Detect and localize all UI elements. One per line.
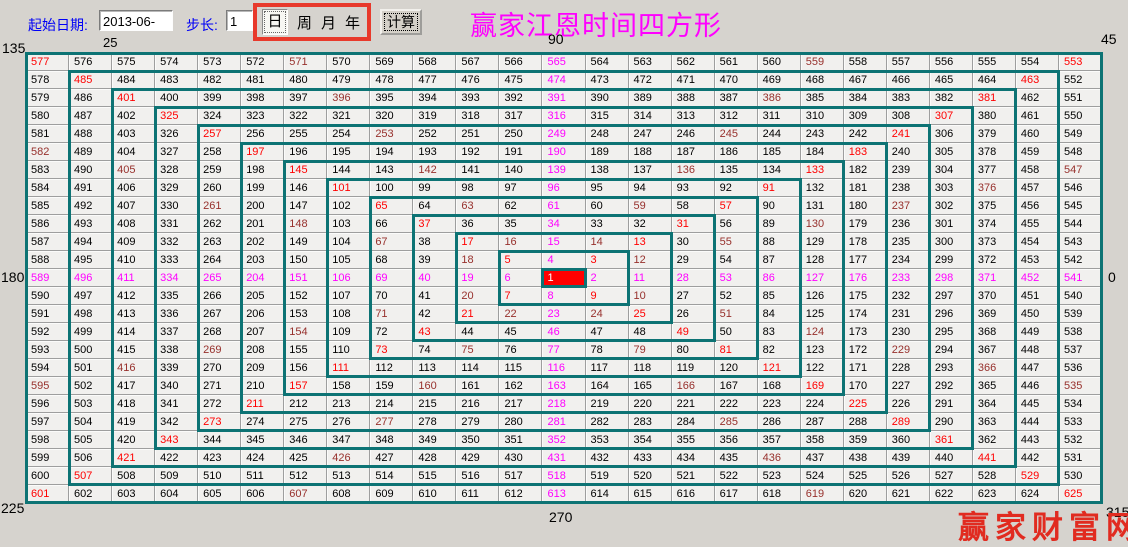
grid-cell[interactable]: 546: [1059, 179, 1102, 197]
grid-cell[interactable]: 106: [327, 269, 370, 287]
grid-cell[interactable]: 223: [758, 395, 801, 413]
grid-cell[interactable]: 111: [327, 359, 370, 377]
grid-cell[interactable]: 272: [198, 395, 241, 413]
grid-cell[interactable]: 280: [499, 413, 542, 431]
grid-cell[interactable]: 57: [715, 197, 758, 215]
grid-cell[interactable]: 416: [112, 359, 155, 377]
grid-cell[interactable]: 251: [456, 125, 499, 143]
grid-cell[interactable]: 540: [1059, 287, 1102, 305]
grid-cell[interactable]: 349: [413, 431, 456, 449]
grid-cell[interactable]: 184: [801, 143, 844, 161]
grid-cell[interactable]: 471: [672, 71, 715, 89]
grid-cell[interactable]: 395: [370, 89, 413, 107]
grid-cell[interactable]: 218: [542, 395, 585, 413]
grid-cell[interactable]: 442: [1016, 449, 1059, 467]
grid-cell[interactable]: 425: [284, 449, 327, 467]
grid-cell[interactable]: 521: [672, 467, 715, 485]
grid-cell[interactable]: 163: [542, 377, 585, 395]
grid-cell[interactable]: 401: [112, 89, 155, 107]
grid-cell[interactable]: 342: [155, 413, 198, 431]
grid-cell[interactable]: 214: [370, 395, 413, 413]
grid-cell[interactable]: 559: [801, 53, 844, 71]
grid-cell[interactable]: 406: [112, 179, 155, 197]
grid-cell[interactable]: 4: [542, 251, 585, 269]
grid-cell[interactable]: 20: [456, 287, 499, 305]
grid-cell[interactable]: 143: [370, 161, 413, 179]
grid-cell[interactable]: 238: [887, 179, 930, 197]
grid-cell[interactable]: 534: [1059, 395, 1102, 413]
grid-cell[interactable]: 179: [844, 215, 887, 233]
grid-cell[interactable]: 404: [112, 143, 155, 161]
grid-cell[interactable]: 386: [758, 89, 801, 107]
grid-cell[interactable]: 202: [241, 233, 284, 251]
grid-cell[interactable]: 536: [1059, 359, 1102, 377]
grid-cell[interactable]: 461: [1016, 107, 1059, 125]
grid-cell[interactable]: 390: [586, 89, 629, 107]
grid-cell[interactable]: 604: [155, 485, 198, 503]
grid-cell[interactable]: 159: [370, 377, 413, 395]
grid-cell[interactable]: 358: [801, 431, 844, 449]
grid-cell[interactable]: 281: [542, 413, 585, 431]
grid-cell[interactable]: 517: [499, 467, 542, 485]
grid-cell[interactable]: 86: [758, 269, 801, 287]
grid-cell[interactable]: 286: [758, 413, 801, 431]
grid-cell[interactable]: 261: [198, 197, 241, 215]
grid-cell[interactable]: 384: [844, 89, 887, 107]
period-option-年[interactable]: 年: [345, 12, 360, 33]
grid-cell[interactable]: 119: [672, 359, 715, 377]
grid-cell[interactable]: 468: [801, 71, 844, 89]
grid-cell[interactable]: 478: [370, 71, 413, 89]
grid-cell[interactable]: 376: [973, 179, 1016, 197]
grid-cell[interactable]: 494: [69, 233, 112, 251]
grid-cell[interactable]: 375: [973, 197, 1016, 215]
grid-cell[interactable]: 310: [801, 107, 844, 125]
grid-cell[interactable]: 439: [887, 449, 930, 467]
grid-cell[interactable]: 504: [69, 413, 112, 431]
grid-cell[interactable]: 522: [715, 467, 758, 485]
grid-cell[interactable]: 451: [1016, 287, 1059, 305]
grid-cell[interactable]: 608: [327, 485, 370, 503]
grid-cell[interactable]: 154: [284, 323, 327, 341]
grid-cell[interactable]: 224: [801, 395, 844, 413]
grid-cell[interactable]: 497: [69, 287, 112, 305]
grid-cell[interactable]: 107: [327, 287, 370, 305]
grid-cell[interactable]: 453: [1016, 251, 1059, 269]
grid-cell[interactable]: 543: [1059, 233, 1102, 251]
grid-cell[interactable]: 130: [801, 215, 844, 233]
grid-cell[interactable]: 625: [1059, 485, 1102, 503]
grid-cell[interactable]: 10: [629, 287, 672, 305]
grid-cell[interactable]: 235: [887, 233, 930, 251]
grid-cell[interactable]: 36: [456, 215, 499, 233]
grid-cell[interactable]: 344: [198, 431, 241, 449]
grid-cell[interactable]: 135: [715, 161, 758, 179]
grid-cell[interactable]: 353: [586, 431, 629, 449]
grid-cell[interactable]: 394: [413, 89, 456, 107]
grid-cell[interactable]: 291: [930, 395, 973, 413]
grid-cell[interactable]: 7: [499, 287, 542, 305]
grid-cell[interactable]: 452: [1016, 269, 1059, 287]
grid-cell[interactable]: 457: [1016, 179, 1059, 197]
grid-cell[interactable]: 500: [69, 341, 112, 359]
grid-cell[interactable]: 407: [112, 197, 155, 215]
grid-cell[interactable]: 373: [973, 233, 1016, 251]
grid-cell[interactable]: 613: [542, 485, 585, 503]
grid-cell[interactable]: 156: [284, 359, 327, 377]
grid-cell[interactable]: 333: [155, 251, 198, 269]
grid-cell[interactable]: 165: [629, 377, 672, 395]
grid-cell[interactable]: 316: [542, 107, 585, 125]
grid-cell[interactable]: 19: [456, 269, 499, 287]
grid-cell[interactable]: 498: [69, 305, 112, 323]
grid-cell[interactable]: 104: [327, 233, 370, 251]
grid-cell[interactable]: 101: [327, 179, 370, 197]
grid-cell[interactable]: 182: [844, 161, 887, 179]
grid-cell[interactable]: 318: [456, 107, 499, 125]
grid-cell[interactable]: 96: [542, 179, 585, 197]
grid-cell[interactable]: 603: [112, 485, 155, 503]
grid-cell[interactable]: 480: [284, 71, 327, 89]
grid-cell[interactable]: 52: [715, 287, 758, 305]
grid-cell[interactable]: 181: [844, 179, 887, 197]
grid-cell[interactable]: 514: [370, 467, 413, 485]
grid-cell[interactable]: 38: [413, 233, 456, 251]
grid-cell[interactable]: 237: [887, 197, 930, 215]
grid-cell[interactable]: 187: [672, 143, 715, 161]
grid-cell[interactable]: 365: [973, 377, 1016, 395]
grid-cell[interactable]: 105: [327, 251, 370, 269]
grid-cell[interactable]: 60: [586, 197, 629, 215]
grid-cell[interactable]: 352: [542, 431, 585, 449]
grid-cell[interactable]: 293: [930, 359, 973, 377]
grid-cell[interactable]: 83: [758, 323, 801, 341]
grid-cell[interactable]: 213: [327, 395, 370, 413]
grid-cell[interactable]: 162: [499, 377, 542, 395]
grid-cell[interactable]: 276: [327, 413, 370, 431]
grid-cell[interactable]: 341: [155, 395, 198, 413]
grid-cell[interactable]: 510: [198, 467, 241, 485]
grid-cell[interactable]: 335: [155, 287, 198, 305]
grid-cell[interactable]: 322: [284, 107, 327, 125]
grid-cell[interactable]: 568: [413, 53, 456, 71]
grid-cell[interactable]: 191: [499, 143, 542, 161]
grid-cell[interactable]: 611: [456, 485, 499, 503]
grid-cell[interactable]: 587: [26, 233, 69, 251]
grid-cell[interactable]: 354: [629, 431, 672, 449]
grid-cell[interactable]: 118: [629, 359, 672, 377]
grid-cell[interactable]: 527: [930, 467, 973, 485]
grid-cell[interactable]: 100: [370, 179, 413, 197]
grid-cell[interactable]: 361: [930, 431, 973, 449]
grid-cell[interactable]: 175: [844, 287, 887, 305]
grid-cell[interactable]: 250: [499, 125, 542, 143]
grid-cell[interactable]: 512: [284, 467, 327, 485]
grid-cell[interactable]: 249: [542, 125, 585, 143]
grid-cell[interactable]: 438: [844, 449, 887, 467]
grid-cell[interactable]: 622: [930, 485, 973, 503]
grid-cell[interactable]: 444: [1016, 413, 1059, 431]
grid-cell[interactable]: 75: [456, 341, 499, 359]
grid-cell[interactable]: 275: [284, 413, 327, 431]
grid-cell[interactable]: 72: [370, 323, 413, 341]
grid-cell[interactable]: 576: [69, 53, 112, 71]
grid-cell[interactable]: 311: [758, 107, 801, 125]
grid-cell[interactable]: 477: [413, 71, 456, 89]
grid-cell[interactable]: 557: [887, 53, 930, 71]
grid-cell[interactable]: 221: [672, 395, 715, 413]
grid-cell[interactable]: 403: [112, 125, 155, 143]
grid-cell[interactable]: 8: [542, 287, 585, 305]
grid-cell[interactable]: 87: [758, 251, 801, 269]
grid-cell[interactable]: 91: [758, 179, 801, 197]
grid-cell[interactable]: 526: [887, 467, 930, 485]
grid-cell[interactable]: 84: [758, 305, 801, 323]
grid-cell[interactable]: 300: [930, 233, 973, 251]
grid-cell[interactable]: 523: [758, 467, 801, 485]
grid-cell[interactable]: 33: [586, 215, 629, 233]
grid-cell[interactable]: 371: [973, 269, 1016, 287]
grid-cell[interactable]: 74: [413, 341, 456, 359]
grid-cell[interactable]: 533: [1059, 413, 1102, 431]
grid-cell[interactable]: 229: [887, 341, 930, 359]
grid-cell[interactable]: 112: [370, 359, 413, 377]
grid-cell[interactable]: 28: [672, 269, 715, 287]
grid-cell[interactable]: 325: [155, 107, 198, 125]
grid-cell[interactable]: 34: [542, 215, 585, 233]
grid-cell[interactable]: 580: [26, 107, 69, 125]
grid-cell[interactable]: 616: [672, 485, 715, 503]
grid-cell[interactable]: 140: [499, 161, 542, 179]
grid-cell[interactable]: 589: [26, 269, 69, 287]
grid-cell[interactable]: 68: [370, 251, 413, 269]
grid-cell[interactable]: 427: [370, 449, 413, 467]
grid-cell[interactable]: 388: [672, 89, 715, 107]
grid-cell[interactable]: 258: [198, 143, 241, 161]
grid-cell[interactable]: 551: [1059, 89, 1102, 107]
grid-cell[interactable]: 301: [930, 215, 973, 233]
grid-cell[interactable]: 445: [1016, 395, 1059, 413]
grid-cell[interactable]: 465: [930, 71, 973, 89]
grid-cell[interactable]: 13: [629, 233, 672, 251]
grid-cell[interactable]: 472: [629, 71, 672, 89]
grid-cell[interactable]: 620: [844, 485, 887, 503]
grid-cell[interactable]: 103: [327, 215, 370, 233]
grid-cell[interactable]: 470: [715, 71, 758, 89]
grid-cell[interactable]: 131: [801, 197, 844, 215]
grid-cell[interactable]: 197: [241, 143, 284, 161]
grid-cell[interactable]: 288: [844, 413, 887, 431]
grid-cell[interactable]: 597: [26, 413, 69, 431]
grid-cell[interactable]: 247: [629, 125, 672, 143]
grid-cell[interactable]: 120: [715, 359, 758, 377]
grid-cell[interactable]: 495: [69, 251, 112, 269]
grid-cell[interactable]: 51: [715, 305, 758, 323]
grid-cell[interactable]: 15: [542, 233, 585, 251]
grid-cell[interactable]: 544: [1059, 215, 1102, 233]
grid-cell[interactable]: 532: [1059, 431, 1102, 449]
grid-cell[interactable]: 215: [413, 395, 456, 413]
grid-cell[interactable]: 59: [629, 197, 672, 215]
grid-cell[interactable]: 69: [370, 269, 413, 287]
grid-cell[interactable]: 31: [672, 215, 715, 233]
grid-cell[interactable]: 486: [69, 89, 112, 107]
grid-cell[interactable]: 77: [542, 341, 585, 359]
grid-cell[interactable]: 502: [69, 377, 112, 395]
grid-cell[interactable]: 186: [715, 143, 758, 161]
grid-cell[interactable]: 137: [629, 161, 672, 179]
grid-cell[interactable]: 306: [930, 125, 973, 143]
grid-cell[interactable]: 22: [499, 305, 542, 323]
grid-cell[interactable]: 254: [327, 125, 370, 143]
grid-cell[interactable]: 122: [801, 359, 844, 377]
grid-cell[interactable]: 503: [69, 395, 112, 413]
grid-cell[interactable]: 92: [715, 179, 758, 197]
grid-cell[interactable]: 115: [499, 359, 542, 377]
grid-cell[interactable]: 464: [973, 71, 1016, 89]
grid-cell[interactable]: 539: [1059, 305, 1102, 323]
grid-cell[interactable]: 25: [629, 305, 672, 323]
grid-cell[interactable]: 410: [112, 251, 155, 269]
grid-cell[interactable]: 420: [112, 431, 155, 449]
grid-cell[interactable]: 47: [586, 323, 629, 341]
grid-cell[interactable]: 364: [973, 395, 1016, 413]
grid-cell[interactable]: 58: [672, 197, 715, 215]
grid-cell[interactable]: 383: [887, 89, 930, 107]
grid-cell[interactable]: 205: [241, 287, 284, 305]
grid-cell[interactable]: 265: [198, 269, 241, 287]
grid-cell[interactable]: 29: [672, 251, 715, 269]
grid-cell[interactable]: 90: [758, 197, 801, 215]
grid-cell[interactable]: 605: [198, 485, 241, 503]
grid-cell[interactable]: 241: [887, 125, 930, 143]
grid-cell[interactable]: 161: [456, 377, 499, 395]
grid-cell[interactable]: 381: [973, 89, 1016, 107]
grid-cell[interactable]: 126: [801, 287, 844, 305]
grid-cell[interactable]: 158: [327, 377, 370, 395]
grid-cell[interactable]: 571: [284, 53, 327, 71]
grid-cell[interactable]: 234: [887, 251, 930, 269]
grid-cell[interactable]: 217: [499, 395, 542, 413]
grid-cell[interactable]: 48: [629, 323, 672, 341]
grid-cell[interactable]: 23: [542, 305, 585, 323]
grid-cell[interactable]: 5: [499, 251, 542, 269]
grid-cell[interactable]: 408: [112, 215, 155, 233]
grid-cell[interactable]: 607: [284, 485, 327, 503]
grid-cell[interactable]: 360: [887, 431, 930, 449]
grid-cell[interactable]: 285: [715, 413, 758, 431]
grid-cell[interactable]: 240: [887, 143, 930, 161]
grid-cell[interactable]: 519: [586, 467, 629, 485]
grid-cell[interactable]: 573: [198, 53, 241, 71]
grid-cell[interactable]: 304: [930, 161, 973, 179]
grid-cell[interactable]: 599: [26, 449, 69, 467]
grid-cell[interactable]: 168: [758, 377, 801, 395]
grid-cell[interactable]: 296: [930, 305, 973, 323]
grid-cell[interactable]: 149: [284, 233, 327, 251]
grid-cell[interactable]: 548: [1059, 143, 1102, 161]
grid-cell[interactable]: 116: [542, 359, 585, 377]
grid-cell[interactable]: 6: [499, 269, 542, 287]
grid-cell[interactable]: 398: [241, 89, 284, 107]
grid-cell[interactable]: 41: [413, 287, 456, 305]
grid-cell[interactable]: 124: [801, 323, 844, 341]
grid-cell[interactable]: 85: [758, 287, 801, 305]
grid-cell[interactable]: 508: [112, 467, 155, 485]
grid-cell[interactable]: 621: [887, 485, 930, 503]
grid-cell[interactable]: 210: [241, 377, 284, 395]
grid-cell[interactable]: 190: [542, 143, 585, 161]
grid-cell[interactable]: 244: [758, 125, 801, 143]
grid-cell[interactable]: 166: [672, 377, 715, 395]
grid-cell[interactable]: 396: [327, 89, 370, 107]
grid-cell[interactable]: 359: [844, 431, 887, 449]
grid-cell[interactable]: 287: [801, 413, 844, 431]
grid-cell[interactable]: 558: [844, 53, 887, 71]
grid-cell[interactable]: 456: [1016, 197, 1059, 215]
grid-cell[interactable]: 431: [542, 449, 585, 467]
grid-cell[interactable]: 70: [370, 287, 413, 305]
grid-cell[interactable]: 490: [69, 161, 112, 179]
grid-cell[interactable]: 449: [1016, 323, 1059, 341]
grid-cell[interactable]: 481: [241, 71, 284, 89]
grid-cell[interactable]: 299: [930, 251, 973, 269]
grid-cell[interactable]: 459: [1016, 143, 1059, 161]
grid-cell[interactable]: 434: [672, 449, 715, 467]
grid-cell[interactable]: 586: [26, 215, 69, 233]
grid-cell[interactable]: 99: [413, 179, 456, 197]
grid-cell[interactable]: 535: [1059, 377, 1102, 395]
grid-cell[interactable]: 233: [887, 269, 930, 287]
grid-cell[interactable]: 537: [1059, 341, 1102, 359]
grid-cell[interactable]: 460: [1016, 125, 1059, 143]
grid-cell[interactable]: 171: [844, 359, 887, 377]
grid-cell[interactable]: 545: [1059, 197, 1102, 215]
grid-cell[interactable]: 598: [26, 431, 69, 449]
grid-cell[interactable]: 248: [586, 125, 629, 143]
grid-cell[interactable]: 588: [26, 251, 69, 269]
grid-cell[interactable]: 220: [629, 395, 672, 413]
grid-cell[interactable]: 538: [1059, 323, 1102, 341]
grid-cell[interactable]: 462: [1016, 89, 1059, 107]
grid-cell[interactable]: 228: [887, 359, 930, 377]
grid-cell[interactable]: 209: [241, 359, 284, 377]
grid-cell[interactable]: 242: [844, 125, 887, 143]
grid-cell[interactable]: 21: [456, 305, 499, 323]
grid-cell[interactable]: 67: [370, 233, 413, 251]
grid-cell[interactable]: 278: [413, 413, 456, 431]
grid-cell[interactable]: 520: [629, 467, 672, 485]
grid-cell[interactable]: 117: [586, 359, 629, 377]
grid-cell[interactable]: 129: [801, 233, 844, 251]
grid-cell[interactable]: 95: [586, 179, 629, 197]
grid-cell[interactable]: 263: [198, 233, 241, 251]
grid-cell[interactable]: 35: [499, 215, 542, 233]
grid-cell[interactable]: 236: [887, 215, 930, 233]
grid-cell[interactable]: 63: [456, 197, 499, 215]
grid-cell[interactable]: 145: [284, 161, 327, 179]
grid-cell[interactable]: 446: [1016, 377, 1059, 395]
grid-cell[interactable]: 432: [586, 449, 629, 467]
grid-cell[interactable]: 448: [1016, 341, 1059, 359]
grid-cell[interactable]: 594: [26, 359, 69, 377]
grid-cell[interactable]: 12: [629, 251, 672, 269]
grid-cell[interactable]: 232: [887, 287, 930, 305]
grid-cell[interactable]: 180: [844, 197, 887, 215]
grid-cell[interactable]: 157: [284, 377, 327, 395]
grid-cell[interactable]: 204: [241, 269, 284, 287]
grid-cell[interactable]: 370: [973, 287, 1016, 305]
